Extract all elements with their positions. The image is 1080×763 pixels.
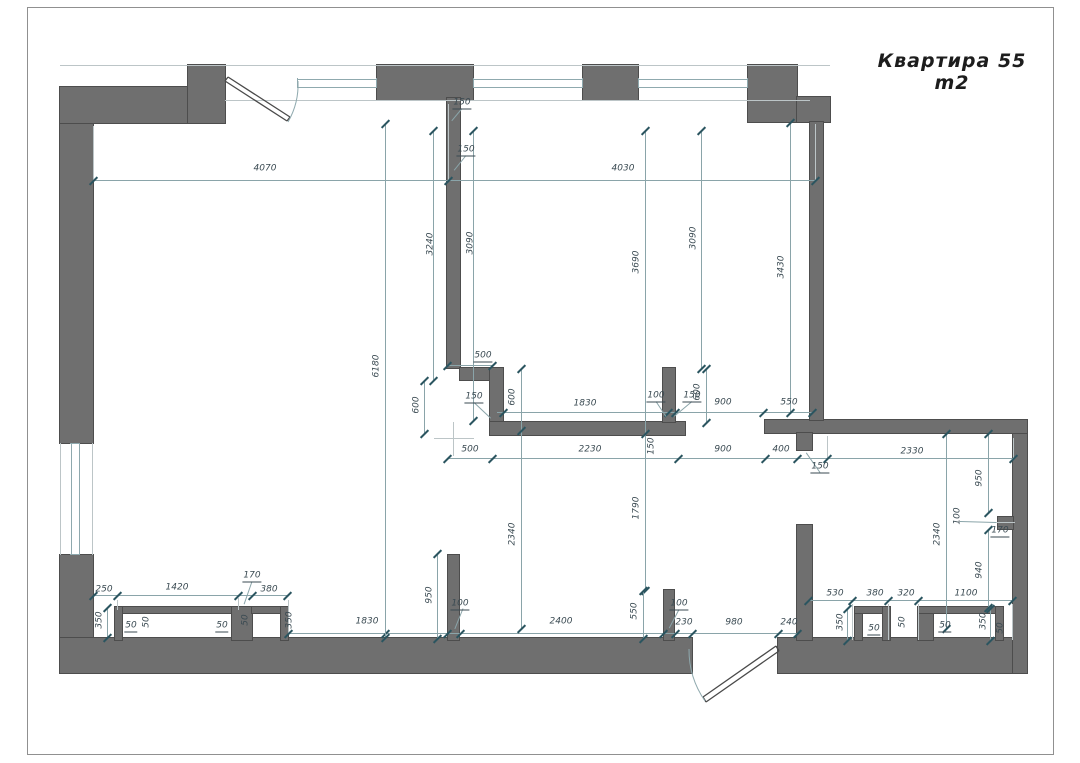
- extension-line: [117, 600, 118, 610]
- window-glazing: [297, 87, 377, 88]
- floor-plan: 4070403015015050015018301001509005505002…: [0, 0, 1080, 763]
- dimension-line: [424, 380, 425, 433]
- dimension-label: 350: [837, 612, 846, 631]
- door-leaf: [225, 77, 290, 121]
- wall: [797, 433, 812, 450]
- dimension-label: 400: [771, 446, 790, 455]
- dimension-label: 50: [938, 622, 951, 633]
- dimension-label: 3090: [690, 226, 699, 251]
- dimension-label: 50: [899, 615, 908, 628]
- dimension-tick: [420, 429, 429, 438]
- window-glazing: [70, 443, 80, 444]
- dimension-label: 600: [413, 395, 422, 414]
- dimension-line: [288, 633, 797, 634]
- dimension-tick: [786, 408, 795, 417]
- dimension-line: [93, 595, 288, 596]
- dimension-label: 600: [694, 382, 703, 401]
- extension-line: [448, 104, 449, 182]
- dimension-label: 1100: [954, 590, 979, 599]
- dimension-line: [447, 365, 492, 366]
- wall: [748, 65, 797, 122]
- dimension-label: 500: [460, 446, 479, 455]
- wall: [765, 420, 1027, 433]
- extension-line: [93, 126, 94, 182]
- wall: [583, 65, 638, 100]
- dimension-line: [988, 529, 989, 607]
- dimension-label: 50: [215, 622, 228, 633]
- dimension-label: 950: [976, 468, 985, 487]
- dimension-label: 350: [980, 611, 989, 630]
- extension-line: [995, 522, 1015, 523]
- dimension-label: 940: [976, 560, 985, 579]
- dimension-label: 240: [779, 619, 798, 628]
- dimension-tick: [761, 454, 770, 463]
- dimension-label: 50: [124, 622, 137, 633]
- dimension-label: 380: [259, 586, 278, 595]
- dimension-label: 170: [990, 527, 1009, 538]
- window-glazing: [638, 87, 748, 88]
- reference-line: [453, 422, 454, 456]
- dimension-label: 900: [713, 399, 732, 408]
- dimension-label: 100: [669, 600, 688, 611]
- dimension-line: [93, 180, 815, 181]
- dimension-label: 170: [242, 572, 261, 583]
- dimension-line: [437, 553, 438, 638]
- dimension-label: 2340: [934, 522, 943, 547]
- dimension-label: 3090: [467, 231, 476, 256]
- wall: [60, 87, 93, 443]
- dimension-label: 550: [631, 601, 640, 620]
- extension-line: [815, 124, 816, 182]
- dimension-tick: [443, 454, 452, 463]
- dimension-line: [385, 123, 386, 637]
- dimension-label: 2230: [578, 446, 603, 455]
- dimension-label: 3430: [778, 255, 787, 280]
- dimension-label: 100: [954, 506, 963, 525]
- dimension-tick: [793, 454, 802, 463]
- dimension-line: [107, 607, 108, 637]
- dimension-line: [790, 122, 791, 412]
- dimension-label: 2400: [549, 618, 574, 627]
- dimension-label: 50: [867, 625, 880, 636]
- reference-line: [434, 438, 474, 439]
- dimension-tick: [248, 591, 257, 600]
- dimension-label: 350: [96, 610, 105, 629]
- dimension-label: 6180: [373, 354, 382, 379]
- dimension-line: [946, 433, 947, 628]
- dimension-line: [645, 130, 646, 590]
- dimension-line: [521, 368, 522, 628]
- dimension-label: 3240: [427, 232, 436, 257]
- wall: [797, 525, 812, 640]
- dimension-label: 1790: [633, 496, 642, 521]
- window-glazing: [582, 78, 583, 88]
- dimension-label: 2340: [509, 522, 518, 547]
- dimension-label: 150: [452, 99, 471, 110]
- window-glazing: [71, 443, 72, 555]
- dimension-label: 100: [450, 600, 469, 611]
- dimension-label: 150: [464, 393, 483, 404]
- dimension-label: 1420: [165, 584, 190, 593]
- leader-line: [244, 581, 253, 604]
- window-glazing: [473, 78, 474, 88]
- dimension-label: 230: [674, 619, 693, 628]
- dimension-label: 980: [724, 619, 743, 628]
- leader-line: [960, 521, 996, 523]
- dimension-label: 950: [426, 585, 435, 604]
- window-glazing: [79, 443, 80, 555]
- reference-line: [60, 65, 830, 66]
- dimension-line: [988, 433, 989, 512]
- dimension-label: 50: [143, 615, 152, 628]
- dimension-label: 3690: [633, 250, 642, 275]
- wall: [60, 638, 692, 673]
- window-glazing: [297, 79, 377, 80]
- reference-line: [92, 443, 93, 555]
- dimension-label: 4030: [611, 165, 636, 174]
- wall: [448, 555, 459, 640]
- reference-line: [60, 443, 61, 555]
- dimension-tick: [688, 629, 697, 638]
- dimension-label: 1830: [355, 618, 380, 627]
- dimension-tick: [674, 454, 683, 463]
- wall: [60, 555, 93, 640]
- extension-line: [852, 604, 853, 640]
- extension-line: [918, 604, 919, 640]
- dimension-tick: [984, 508, 993, 517]
- dimension-label: 100: [646, 392, 665, 403]
- dimension-label: 2330: [900, 448, 925, 457]
- dimension-label: 150: [810, 463, 829, 474]
- dimension-line: [447, 458, 1013, 459]
- wall: [115, 607, 122, 640]
- dimension-line: [701, 130, 702, 368]
- dimension-tick: [429, 376, 438, 385]
- dimension-line: [847, 608, 848, 640]
- dimension-label: 320: [896, 590, 915, 599]
- dimension-label: 150: [648, 436, 657, 455]
- dimension-label: 150: [456, 146, 475, 157]
- wall: [188, 65, 225, 123]
- dimension-label: 500: [473, 352, 492, 363]
- dimension-line: [808, 600, 1012, 601]
- dimension-label: 600: [509, 387, 518, 406]
- wall: [1013, 422, 1027, 673]
- dimension-label: 350: [286, 610, 295, 629]
- dimension-label: 550: [779, 399, 798, 408]
- dimension-label: 50: [242, 613, 251, 626]
- dimension-line: [643, 590, 644, 638]
- extension-line: [888, 604, 889, 640]
- dimension-line: [990, 608, 991, 640]
- window-glazing: [70, 554, 80, 555]
- window-glazing: [376, 78, 377, 88]
- reference-line: [225, 100, 810, 101]
- dimension-tick: [488, 454, 497, 463]
- wall: [377, 65, 473, 100]
- extension-line: [238, 598, 239, 610]
- window-glazing: [638, 79, 748, 80]
- dimension-tick: [469, 416, 478, 425]
- dimension-label: 50: [997, 621, 1006, 634]
- dimension-tick: [702, 418, 711, 427]
- dimension-tick: [759, 408, 768, 417]
- wall: [460, 368, 490, 380]
- dimension-label: 1830: [573, 400, 598, 409]
- dimension-line: [706, 368, 707, 422]
- window-glazing: [297, 78, 298, 88]
- dimension-label: 530: [825, 590, 844, 599]
- window-glazing: [473, 79, 583, 80]
- dimension-label: 900: [713, 446, 732, 455]
- dimension-line: [473, 130, 474, 420]
- wall: [115, 607, 238, 613]
- window-glazing: [747, 78, 748, 88]
- window-glazing: [638, 78, 639, 88]
- extension-line: [1012, 604, 1013, 640]
- wall: [810, 122, 823, 420]
- dimension-label: 4070: [253, 165, 278, 174]
- window-glazing: [473, 87, 583, 88]
- door-leaf: [703, 646, 779, 702]
- dimension-label: 250: [94, 586, 113, 595]
- dimension-label: 380: [865, 590, 884, 599]
